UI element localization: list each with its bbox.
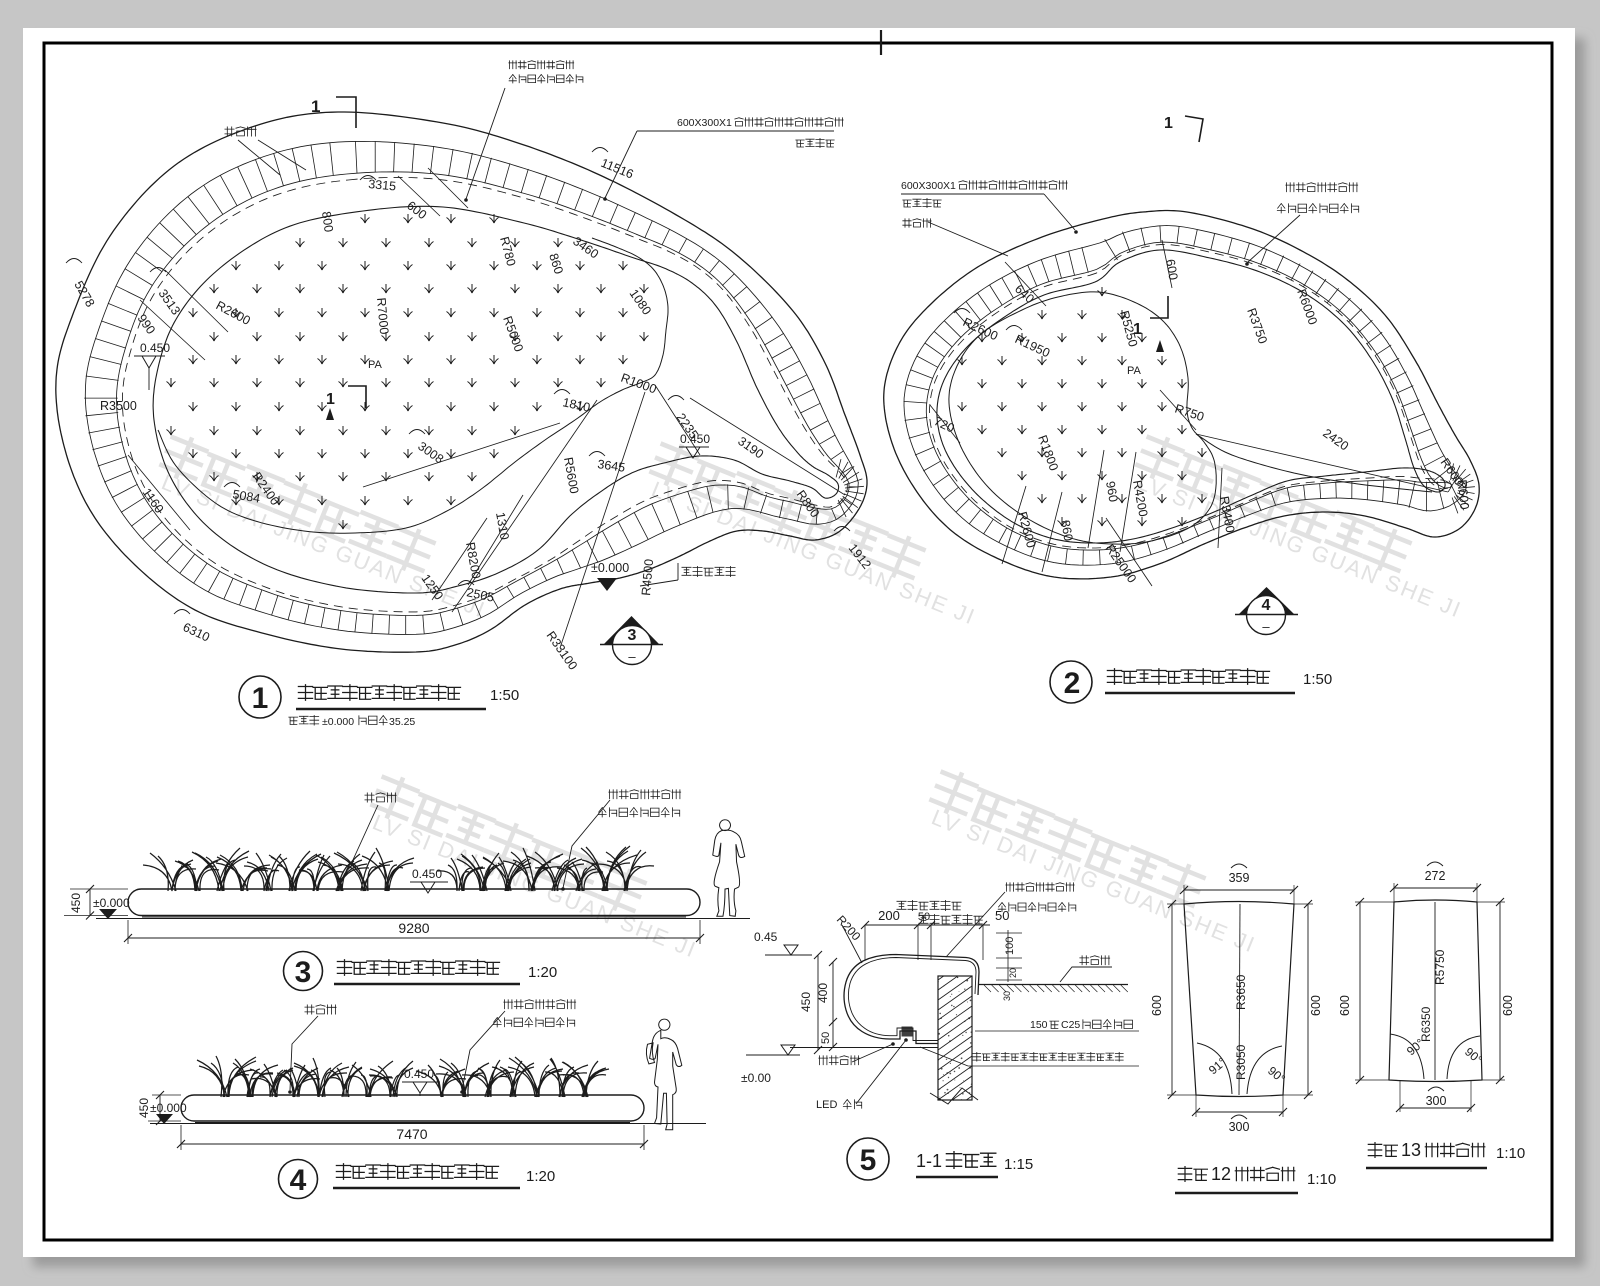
svg-text:20: 20 xyxy=(1008,968,1018,978)
svg-text:450: 450 xyxy=(137,1098,151,1118)
svg-text:R3050: R3050 xyxy=(1234,1044,1248,1080)
svg-text:0.450: 0.450 xyxy=(404,1067,434,1081)
svg-text:3315: 3315 xyxy=(368,177,397,193)
svg-text:1:50: 1:50 xyxy=(490,687,519,704)
svg-text:1: 1 xyxy=(326,391,335,408)
svg-text:PA: PA xyxy=(1127,365,1142,377)
svg-text:–: – xyxy=(1262,619,1270,634)
svg-text:±0.00: ±0.00 xyxy=(741,1071,771,1085)
svg-text:R600: R600 xyxy=(1455,479,1472,510)
svg-text:400: 400 xyxy=(816,983,830,1003)
svg-text:±0.000: ±0.000 xyxy=(591,561,629,575)
svg-text:±0.000: ±0.000 xyxy=(322,716,354,728)
svg-text:1: 1 xyxy=(1164,115,1173,132)
svg-text:0.450: 0.450 xyxy=(680,432,710,446)
svg-text:1-1: 1-1 xyxy=(916,1151,942,1171)
svg-text:3: 3 xyxy=(628,627,637,644)
svg-text:1: 1 xyxy=(311,97,320,116)
svg-text:300: 300 xyxy=(1229,1120,1250,1134)
svg-text:600: 600 xyxy=(1338,995,1352,1016)
svg-text:0.450: 0.450 xyxy=(412,867,442,881)
svg-text:5: 5 xyxy=(860,1144,877,1177)
svg-text:±0.000: ±0.000 xyxy=(93,896,130,910)
svg-text:0.45: 0.45 xyxy=(754,930,778,944)
svg-text:3: 3 xyxy=(295,956,312,989)
svg-text:50: 50 xyxy=(820,1032,832,1044)
svg-text:±0.000: ±0.000 xyxy=(150,1101,187,1115)
svg-text:R3500: R3500 xyxy=(100,399,137,413)
svg-text:1: 1 xyxy=(252,682,269,715)
svg-text:7470: 7470 xyxy=(396,1126,427,1142)
svg-text:R3650: R3650 xyxy=(1234,974,1248,1010)
svg-text:1:15: 1:15 xyxy=(1004,1156,1033,1173)
svg-text:359: 359 xyxy=(1229,871,1250,885)
svg-text:50: 50 xyxy=(918,911,930,923)
svg-text:13: 13 xyxy=(1401,1140,1421,1160)
svg-text:600: 600 xyxy=(1501,995,1515,1016)
svg-text:200: 200 xyxy=(878,908,900,923)
svg-text:PA: PA xyxy=(368,359,383,371)
svg-text:4: 4 xyxy=(1262,597,1271,614)
svg-text:35.25: 35.25 xyxy=(389,716,415,728)
svg-text:R6350: R6350 xyxy=(1419,1006,1433,1042)
svg-text:300: 300 xyxy=(1426,1094,1447,1108)
svg-text:4: 4 xyxy=(290,1164,307,1197)
svg-text:600X300X1: 600X300X1 xyxy=(901,180,956,192)
svg-text:600: 600 xyxy=(1150,995,1164,1016)
svg-text:0.450: 0.450 xyxy=(140,341,170,355)
svg-text:12: 12 xyxy=(1211,1164,1231,1184)
svg-text:450: 450 xyxy=(799,992,813,1012)
svg-text:–: – xyxy=(628,649,636,664)
svg-text:100: 100 xyxy=(1004,937,1016,955)
svg-text:1:20: 1:20 xyxy=(526,1168,555,1185)
svg-text:C25: C25 xyxy=(1061,1019,1080,1031)
svg-text:450: 450 xyxy=(69,893,83,913)
svg-text:1:20: 1:20 xyxy=(528,964,557,981)
svg-text:1:50: 1:50 xyxy=(1303,671,1332,688)
svg-text:600X300X1: 600X300X1 xyxy=(677,117,732,129)
svg-text:600: 600 xyxy=(1309,995,1323,1016)
svg-text:9280: 9280 xyxy=(398,920,429,936)
svg-text:1:10: 1:10 xyxy=(1307,1171,1336,1188)
svg-text:2: 2 xyxy=(1064,667,1081,700)
svg-text:150: 150 xyxy=(1030,1019,1048,1031)
svg-text:1:10: 1:10 xyxy=(1496,1145,1525,1162)
svg-text:30: 30 xyxy=(1002,991,1012,1001)
svg-text:800: 800 xyxy=(319,210,336,233)
svg-text:LED: LED xyxy=(816,1099,837,1111)
svg-text:R5750: R5750 xyxy=(1433,949,1447,985)
svg-text:272: 272 xyxy=(1425,869,1446,883)
